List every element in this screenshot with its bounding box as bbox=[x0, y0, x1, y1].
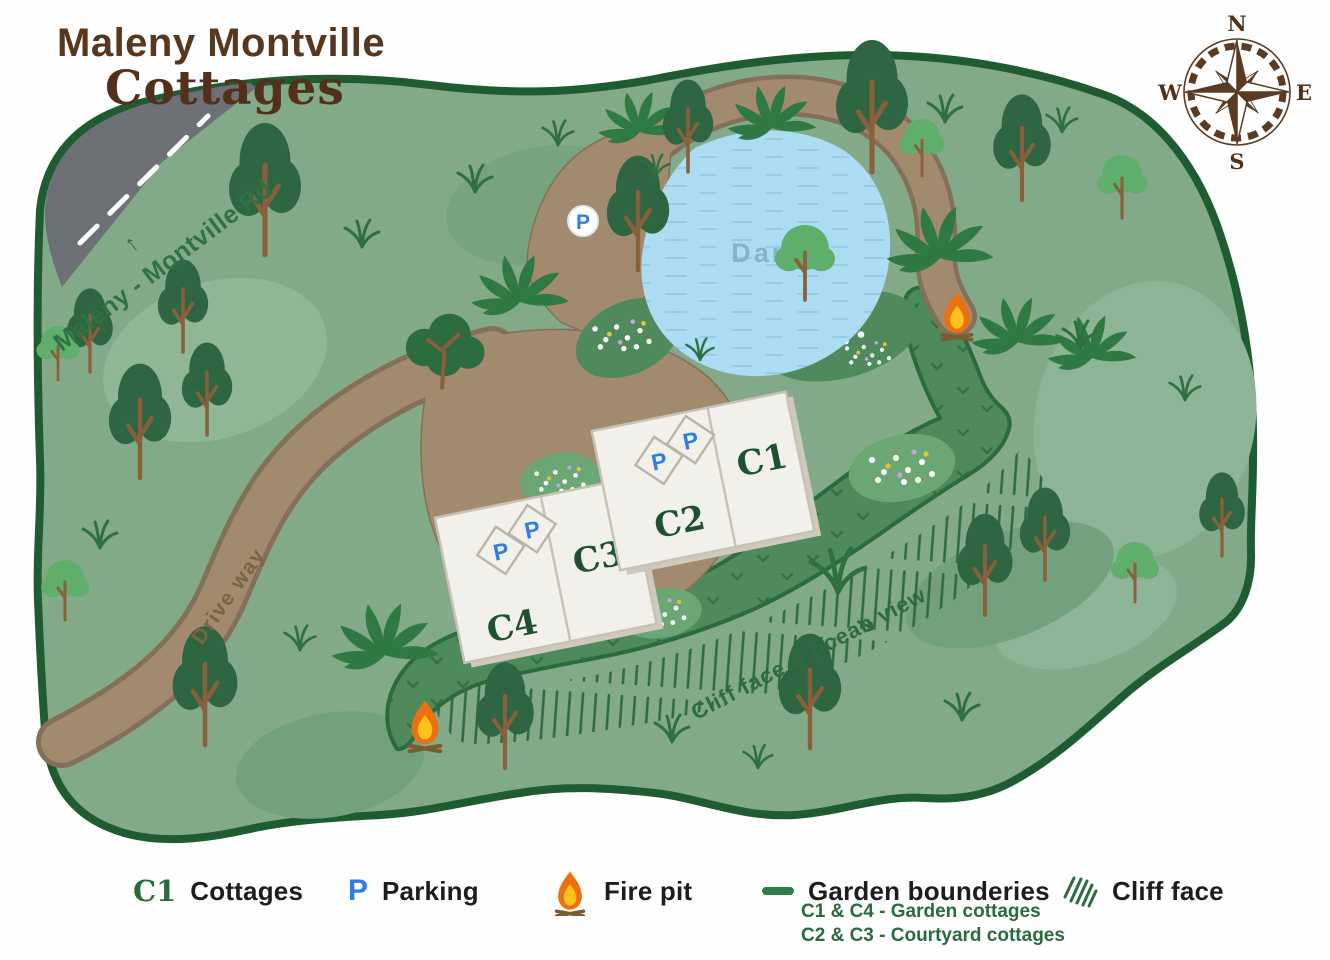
compass-north: N bbox=[1227, 11, 1246, 36]
legend-cottages-label: Cottages bbox=[190, 876, 303, 907]
parking-symbol: P bbox=[348, 874, 368, 908]
garden-note-1: C1 & C4 - Garden cottages bbox=[801, 900, 1065, 924]
legend-fire-pit-label: Fire pit bbox=[604, 876, 692, 907]
compass-west: W bbox=[1157, 80, 1182, 105]
legend-parking-label: Parking bbox=[382, 876, 479, 907]
cliff-face-icon bbox=[1062, 872, 1098, 910]
parking-marker-label: P bbox=[576, 211, 590, 234]
garden-note-2: C2 & C3 - Courtyard cottages bbox=[801, 924, 1065, 948]
legend-item-cliff: Cliff face bbox=[1062, 868, 1224, 914]
cottage-symbol: C1 bbox=[133, 874, 176, 908]
legend-item-cottages: C1 Cottages bbox=[133, 868, 303, 914]
compass-south: S bbox=[1229, 149, 1244, 174]
legend-item-parking: P Parking bbox=[348, 868, 479, 914]
parking-marker: P bbox=[568, 206, 598, 236]
legend-item-fire-pit: Fire pit bbox=[550, 868, 692, 914]
map-title: Maleny Montville Cottages bbox=[57, 22, 385, 113]
garden-notes: C1 & C4 - Garden cottages C2 & C3 - Cour… bbox=[801, 900, 1065, 948]
map-canvas: Dam P P C3 C4 P P C2 C1 bbox=[0, 0, 1330, 960]
property-map: Dam P P C3 C4 P P C2 C1 bbox=[0, 0, 1330, 960]
legend: C1 Cottages P Parking Fire pit Garden bo… bbox=[0, 868, 1330, 960]
legend-cliff-label: Cliff face bbox=[1112, 876, 1224, 907]
garden-boundary-icon bbox=[762, 887, 794, 895]
compass-east: E bbox=[1296, 80, 1312, 105]
map-title-line1: Maleny Montville bbox=[57, 22, 385, 64]
fire-pit-icon bbox=[550, 866, 590, 916]
map-title-line2: Cottages bbox=[105, 64, 385, 113]
